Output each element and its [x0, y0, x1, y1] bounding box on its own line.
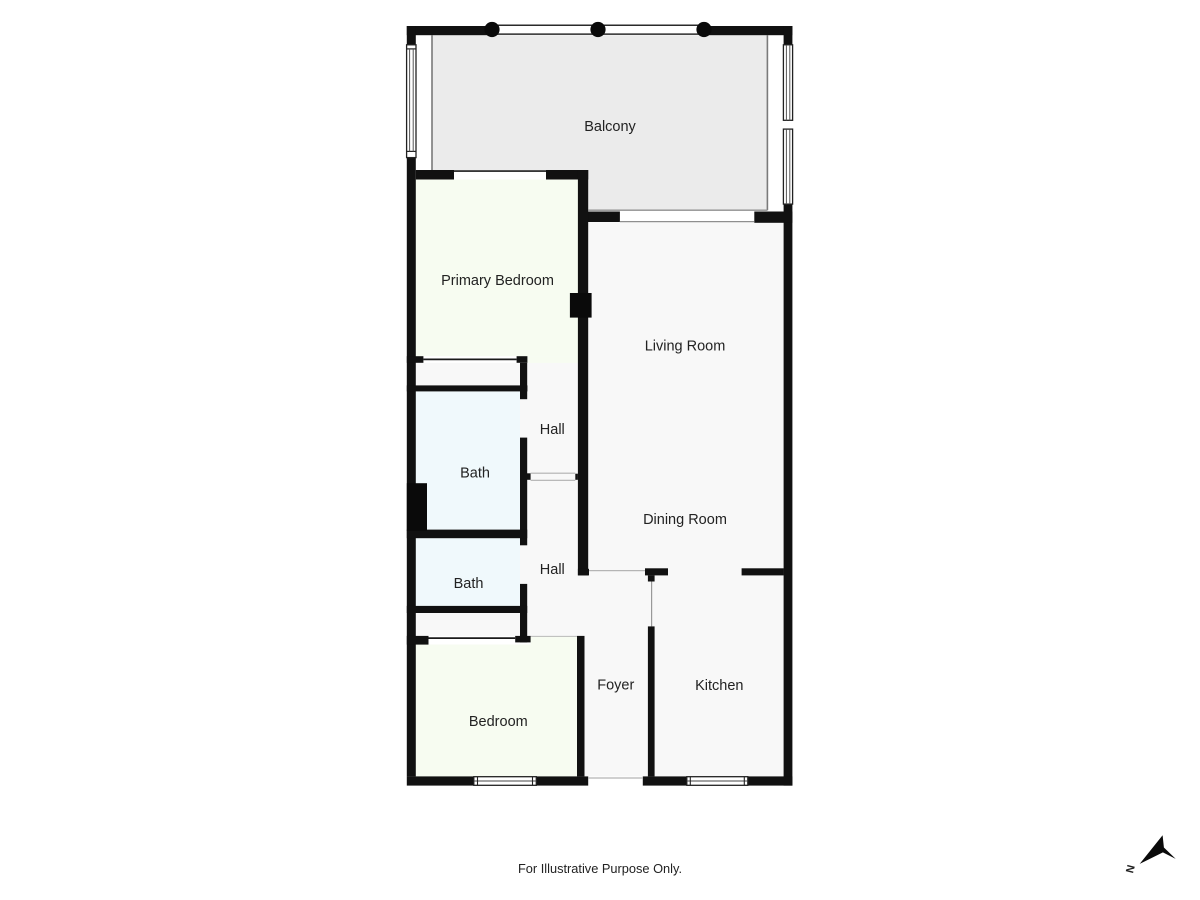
svg-text:Dining Room: Dining Room — [643, 512, 727, 528]
svg-text:Bath: Bath — [454, 576, 484, 592]
svg-text:Kitchen: Kitchen — [695, 678, 743, 694]
svg-text:Primary Bedroom: Primary Bedroom — [441, 273, 554, 289]
svg-text:Foyer: Foyer — [597, 678, 634, 694]
svg-text:Hall: Hall — [540, 562, 565, 578]
svg-text:Living Room: Living Room — [645, 339, 726, 355]
svg-text:Hall: Hall — [540, 422, 565, 438]
svg-text:Bedroom: Bedroom — [469, 714, 528, 730]
svg-text:Bath: Bath — [460, 465, 490, 481]
svg-text:For Illustrative Purpose Only.: For Illustrative Purpose Only. — [518, 861, 682, 876]
svg-text:Balcony: Balcony — [584, 119, 636, 135]
